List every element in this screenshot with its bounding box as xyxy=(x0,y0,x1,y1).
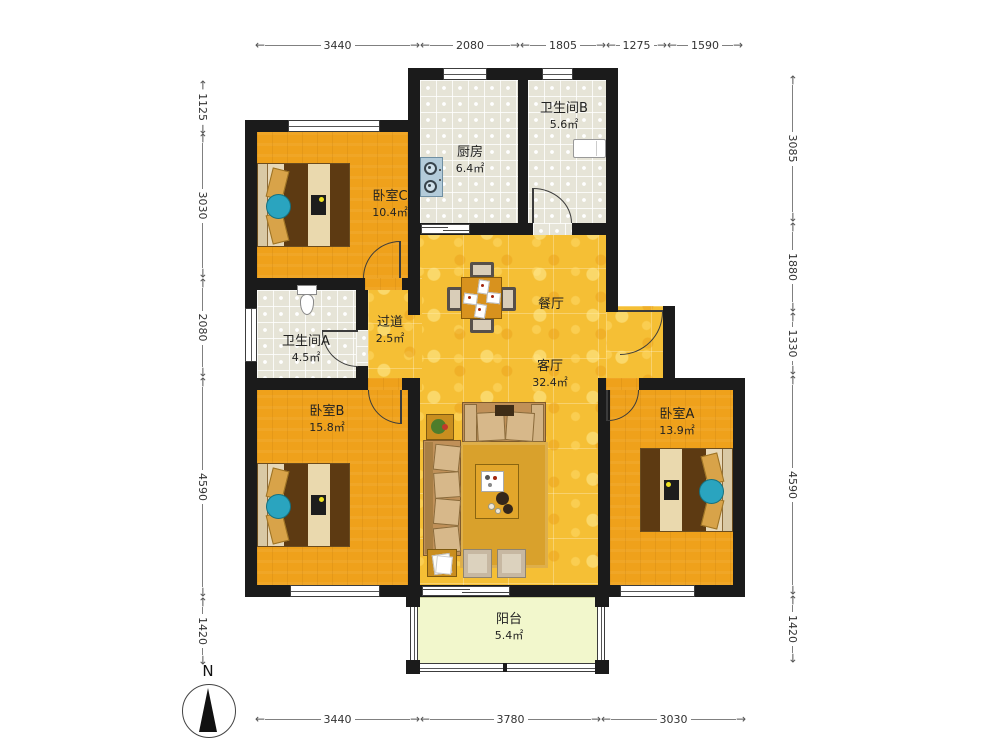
food-dot xyxy=(468,296,471,299)
dim-value: 1420 xyxy=(787,612,800,646)
room-label-bedroom-a: 卧室A 13.9㎡ xyxy=(637,406,717,438)
room-name: 厨房 xyxy=(430,144,510,162)
dim-right-5: 1420 xyxy=(786,595,800,663)
dim-value: 1420 xyxy=(197,614,210,648)
side-table-plant xyxy=(426,414,454,440)
dim-value: 1125 xyxy=(197,90,210,124)
sliding-door-balcony xyxy=(422,586,510,596)
door-opening-bedroom-c xyxy=(365,278,402,290)
door-leaf-bedroom-c xyxy=(399,241,401,278)
sofa-left xyxy=(423,440,461,556)
sofa-cushion xyxy=(433,444,462,473)
window-bedroom-a xyxy=(620,585,695,597)
room-area: 15.8㎡ xyxy=(287,421,367,436)
door-leaf-bedroom-b xyxy=(400,390,402,424)
dim-right-2: 1880 xyxy=(786,222,800,312)
dim-value: 1880 xyxy=(787,250,800,284)
bed-round-pillow xyxy=(266,194,291,219)
dim-value: 1590 xyxy=(688,39,722,52)
room-name: 客厅 xyxy=(510,358,590,376)
room-label-bedroom-b: 卧室B 15.8㎡ xyxy=(287,403,367,435)
dim-top-2: 2080 xyxy=(420,38,520,52)
bed-tablet xyxy=(664,480,679,500)
dim-value: 3440 xyxy=(321,39,355,52)
balcony-post-top-left xyxy=(406,594,420,607)
bed-bedroom-c xyxy=(257,163,350,247)
balcony-rail-left xyxy=(410,597,418,665)
dim-bottom-2: 3780 xyxy=(420,712,601,726)
chair-seat xyxy=(473,265,491,275)
room-name: 餐厅 xyxy=(511,296,591,314)
window-bathroom-a xyxy=(245,308,257,362)
bed-round-pillow xyxy=(266,494,291,519)
dim-top-1: 3440 xyxy=(255,38,420,52)
room-name: 卧室A xyxy=(637,406,717,424)
tray-item xyxy=(493,476,497,480)
balcony-rail-bottom xyxy=(410,663,605,672)
sofa-top xyxy=(462,402,546,442)
door-leaf-bathroom-b xyxy=(532,188,534,223)
dim-top-5: 1590 xyxy=(667,38,743,52)
food-dot xyxy=(478,308,481,311)
wall-bedroom-a-right xyxy=(733,378,745,597)
room-area: 5.6㎡ xyxy=(524,118,604,133)
north-arrow-icon xyxy=(199,688,217,732)
room-name: 阳台 xyxy=(469,611,549,629)
dim-value: 1330 xyxy=(787,327,800,361)
window-bedroom-c xyxy=(288,120,380,132)
room-area: 6.4㎡ xyxy=(430,162,510,177)
door-leaf-bedroom-a xyxy=(606,390,608,421)
dim-value: 3085 xyxy=(787,132,800,166)
dim-left-4: 4590 xyxy=(196,377,210,597)
tray-item xyxy=(485,475,490,480)
dim-value: 2080 xyxy=(453,39,487,52)
coffee-table xyxy=(475,464,519,519)
dim-left-5: 1420 xyxy=(196,597,210,665)
dim-top-3: 1805 xyxy=(520,38,606,52)
cup xyxy=(488,503,495,510)
room-label-kitchen: 厨房 6.4㎡ xyxy=(430,144,510,176)
window-kitchen xyxy=(443,68,487,80)
room-name: 卧室B xyxy=(287,403,367,421)
balcony-post-bottom-right xyxy=(595,660,609,674)
balcony-rail-right xyxy=(597,597,605,665)
room-area: 10.4㎡ xyxy=(350,206,430,221)
kettle xyxy=(503,504,513,514)
dim-value: 3030 xyxy=(197,189,210,223)
dim-bottom-1: 3440 xyxy=(255,712,420,726)
stove-knob xyxy=(439,179,441,181)
place-mat xyxy=(474,303,487,319)
food-dot xyxy=(481,284,484,287)
stool xyxy=(497,549,526,578)
door-opening-bedroom-b xyxy=(368,378,402,390)
bed-round-pillow xyxy=(699,479,724,504)
dim-value: 3780 xyxy=(494,713,528,726)
dim-value: 4590 xyxy=(197,470,210,504)
dim-value: 1275 xyxy=(620,39,654,52)
north-label: N xyxy=(175,662,241,680)
dining-table xyxy=(461,277,502,319)
room-area: 32.4㎡ xyxy=(510,376,590,391)
window-bathroom-b xyxy=(542,68,573,80)
stool xyxy=(463,549,492,578)
dim-left-2: 3030 xyxy=(196,133,210,278)
room-name: 过道 xyxy=(355,314,425,332)
dim-value: 2080 xyxy=(197,311,210,345)
wall-right-upper xyxy=(606,68,618,312)
room-label-bedroom-c: 卧室C 10.4㎡ xyxy=(350,188,430,220)
washbasin xyxy=(573,139,606,158)
dining-chair-top xyxy=(470,262,494,278)
balcony-post-bottom-left xyxy=(406,660,420,674)
dim-bottom-3: 3030 xyxy=(601,712,746,726)
tray-item xyxy=(488,483,492,487)
room-label-bathroom-b: 卫生间B 5.6㎡ xyxy=(524,100,604,132)
room-label-bathroom-a: 卫生间A 4.5㎡ xyxy=(266,333,346,365)
food-dot xyxy=(491,295,494,298)
dim-right-3: 1330 xyxy=(786,312,800,375)
room-area: 13.9㎡ xyxy=(637,424,717,439)
bed-tablet xyxy=(311,495,326,515)
dim-value: 3440 xyxy=(321,713,355,726)
dim-right-1: 3085 xyxy=(786,75,800,222)
bed-bedroom-b xyxy=(257,463,350,547)
room-label-balcony: 阳台 5.4㎡ xyxy=(469,611,549,643)
window-bedroom-b xyxy=(290,585,380,597)
plant-flower xyxy=(442,424,448,430)
sofa-cushion xyxy=(433,498,461,526)
place-mat xyxy=(486,292,501,304)
sliding-door-kitchen xyxy=(421,224,470,234)
north-indicator: N xyxy=(175,662,241,742)
dim-left-3: 2080 xyxy=(196,278,210,377)
sofa-cushion xyxy=(433,471,461,499)
washbasin-divider xyxy=(596,141,597,156)
dim-value: 4590 xyxy=(787,468,800,502)
room-label-dining: 餐厅 xyxy=(511,296,591,314)
wall-entry-side xyxy=(663,306,675,382)
chair-seat xyxy=(450,290,460,308)
room-name: 卫生间A xyxy=(266,333,346,351)
balcony-post-top-right xyxy=(595,594,609,607)
sofa-arm xyxy=(464,404,477,442)
floor-plan-canvas: 卧室C 10.4㎡ 厨房 6.4㎡ 卫生间B 5.6㎡ 卫生间A 4.5㎡ 过道… xyxy=(0,0,1000,750)
balcony-post-bottom-mid xyxy=(503,663,507,672)
door-leaf-bathroom-a xyxy=(322,330,358,332)
room-area: 5.4㎡ xyxy=(469,629,549,644)
dim-right-4: 4590 xyxy=(786,375,800,595)
door-opening-bedroom-a xyxy=(606,378,639,390)
dining-chair-bottom xyxy=(470,317,494,333)
sofa-console xyxy=(495,405,514,416)
dim-left-1: 1125 xyxy=(196,80,210,133)
dim-value: 1805 xyxy=(546,39,580,52)
chair-seat xyxy=(473,320,491,330)
wall-bedroom-b-right xyxy=(408,378,420,597)
room-name: 卧室C xyxy=(350,188,430,206)
room-label-corridor: 过道 2.5㎡ xyxy=(355,314,425,346)
bed-tablet xyxy=(311,195,326,215)
room-name: 卫生间B xyxy=(524,100,604,118)
cup xyxy=(495,508,501,514)
tray xyxy=(481,471,504,492)
dim-value: 3030 xyxy=(657,713,691,726)
room-area: 2.5㎡ xyxy=(355,332,425,347)
dim-top-4: 1275 xyxy=(606,38,667,52)
door-opening-bathroom-b xyxy=(533,223,572,235)
side-table-papers xyxy=(427,549,457,577)
sofa-back xyxy=(425,442,433,554)
papers xyxy=(435,555,453,575)
wall-kitchen-top xyxy=(408,68,618,80)
bed-bedroom-a xyxy=(640,448,733,532)
room-area: 4.5㎡ xyxy=(266,351,346,366)
room-label-living: 客厅 32.4㎡ xyxy=(510,358,590,390)
